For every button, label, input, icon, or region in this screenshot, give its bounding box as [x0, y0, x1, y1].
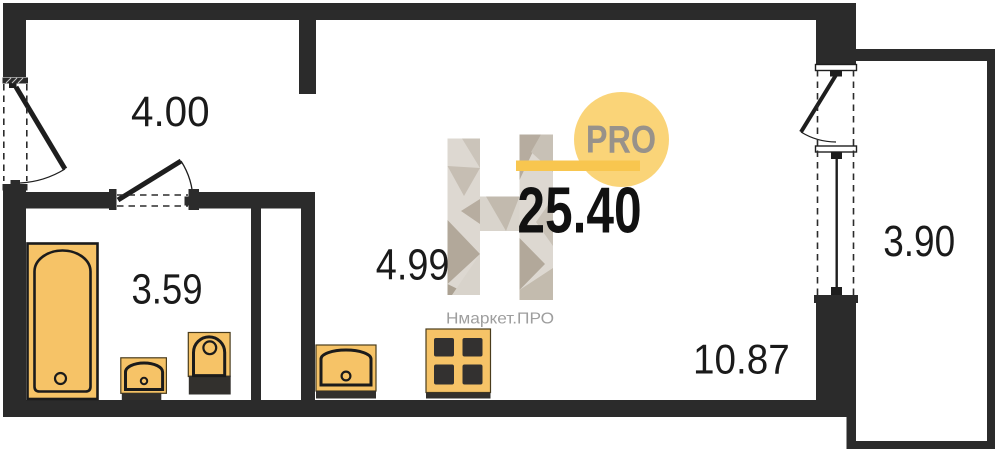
svg-text:3.59: 3.59	[131, 266, 202, 313]
svg-text:4.00: 4.00	[131, 87, 210, 135]
svg-text:25.40: 25.40	[517, 175, 641, 247]
svg-text:PRO: PRO	[586, 118, 656, 161]
svg-text:Нмаркет.ПРО: Нмаркет.ПРО	[446, 309, 554, 327]
svg-text:3.90: 3.90	[883, 216, 955, 266]
svg-text:10.87: 10.87	[693, 335, 790, 383]
svg-text:4.99: 4.99	[376, 240, 450, 289]
